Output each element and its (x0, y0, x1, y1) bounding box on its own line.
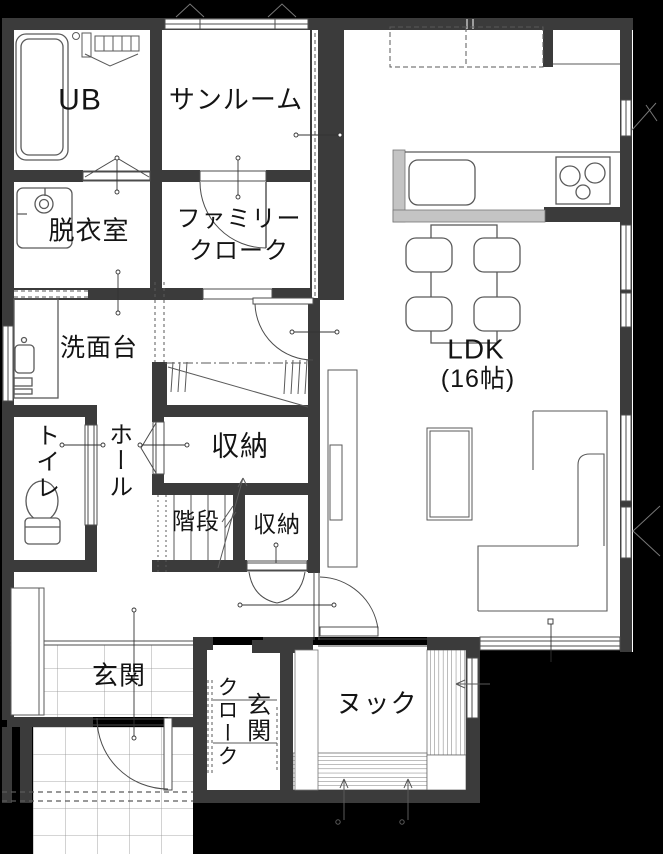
room-label-sunroom: サンルーム (169, 86, 303, 113)
nook-corner-pad (427, 755, 466, 790)
window-right-3 (621, 415, 631, 558)
wall-bottom-nook (193, 790, 480, 803)
wall-h2-a (2, 170, 83, 182)
room-label-nook: ヌック (336, 690, 417, 717)
room-label-hall: ホール (105, 422, 130, 500)
wall-storage1-bottom (152, 483, 320, 495)
room-label-family-cloak-line2: クローク (189, 238, 289, 263)
wall-toilet-right-a (85, 417, 97, 425)
casement-mark-right-2 (633, 506, 660, 556)
floor-plan-drawing (0, 0, 663, 854)
window-ldk-south (480, 637, 620, 650)
door-toilet (85, 425, 97, 525)
casement-mark-top-1 (176, 4, 204, 17)
casement-mark-top-2 (268, 4, 296, 17)
room-label-datsuishitsu: 脱衣室 (48, 217, 129, 244)
wall-h2-b (150, 170, 200, 182)
wall-ub-sunroom (150, 30, 162, 170)
window-sunroom-top (165, 19, 308, 29)
datsui-shelf (14, 290, 88, 298)
shoe-cabinet (11, 588, 44, 715)
room-label-ldk: LDK (447, 334, 504, 363)
room-label-genkan-cloak-left: クローク (215, 676, 237, 768)
casement-mark-right-1 (632, 103, 657, 130)
wall-cloak-right (280, 637, 293, 803)
window-right-2 (621, 225, 631, 327)
wall-center-lower (308, 300, 320, 573)
wall-nook-left-top (293, 637, 313, 650)
wall-datsui-cloak (150, 182, 162, 288)
room-label-genkan: 玄関 (92, 662, 146, 689)
room-label-toilet: トイレ (32, 423, 57, 501)
wall-toilet-bottom (2, 560, 97, 572)
wall-entry-a (7, 717, 93, 727)
wall-stub-corridor (152, 362, 167, 409)
room-label-ldk-size: (16帖) (441, 366, 515, 392)
room-label-storage1: 収納 (211, 431, 269, 460)
room-label-storage2: 収納 (253, 512, 301, 536)
window-senmendai-left (3, 326, 13, 401)
wall-fridge-stub (543, 28, 553, 67)
room-label-ub: UB (58, 84, 102, 116)
wall-stairs-storage2 (233, 495, 245, 560)
nook-left-slot (295, 650, 318, 790)
wall-toilet-top (2, 405, 97, 417)
room-label-family-cloak-line1: ファミリー (177, 206, 302, 231)
wall-h8-end (307, 560, 320, 572)
window-right-1 (621, 100, 631, 136)
window-nook-right (467, 658, 478, 718)
wall-storage1-top (152, 405, 320, 417)
room-label-kaidan: 階段 (172, 509, 220, 533)
room-label-genkan-cloak-right: 玄関 (243, 692, 268, 744)
wall-hall-right-a (152, 417, 164, 422)
nook-bench-slats (427, 650, 466, 755)
opening-nook (318, 639, 427, 646)
floor-plan: UB サンルーム 脱衣室 ファミリー クローク 洗面台 トイレ ホール 収納 階… (0, 0, 663, 854)
wall-kitchen-end (544, 207, 620, 222)
room-label-senmendai: 洗面台 (60, 335, 138, 361)
